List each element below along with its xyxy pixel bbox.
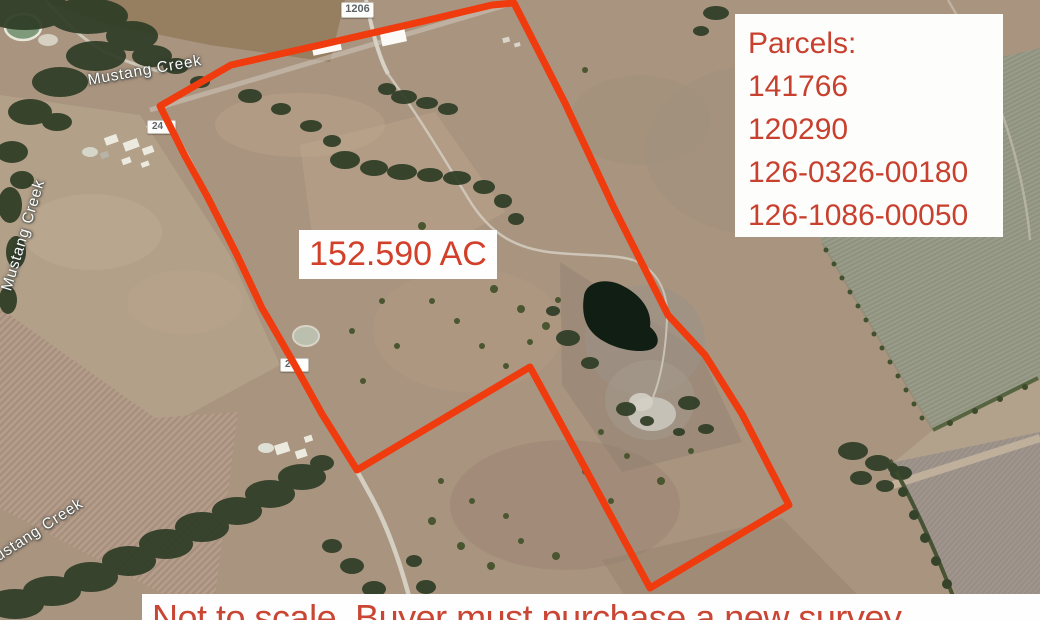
road-shield-24-upper: 24: [147, 120, 176, 134]
parcels-overlay: Parcels: 141766 120290 126-0326-00180 12…: [735, 14, 1003, 237]
disclaimer-overlay: Not to scale. Buyer must purchase a new …: [142, 594, 1040, 620]
road-shield-24-lower: 24: [280, 358, 309, 372]
acreage-overlay: 152.590 AC: [299, 230, 497, 279]
road-shield-1206: 1206: [341, 2, 374, 18]
parcel-number: 141766: [748, 65, 1003, 108]
listing-map-image: Mustang Creek Mustang Creek Mustang Cree…: [0, 0, 1040, 620]
parcel-number: 126-0326-00180: [748, 151, 1003, 194]
parcels-title: Parcels:: [748, 22, 1003, 65]
parcel-number: 126-1086-00050: [748, 194, 1003, 237]
parcel-number: 120290: [748, 108, 1003, 151]
